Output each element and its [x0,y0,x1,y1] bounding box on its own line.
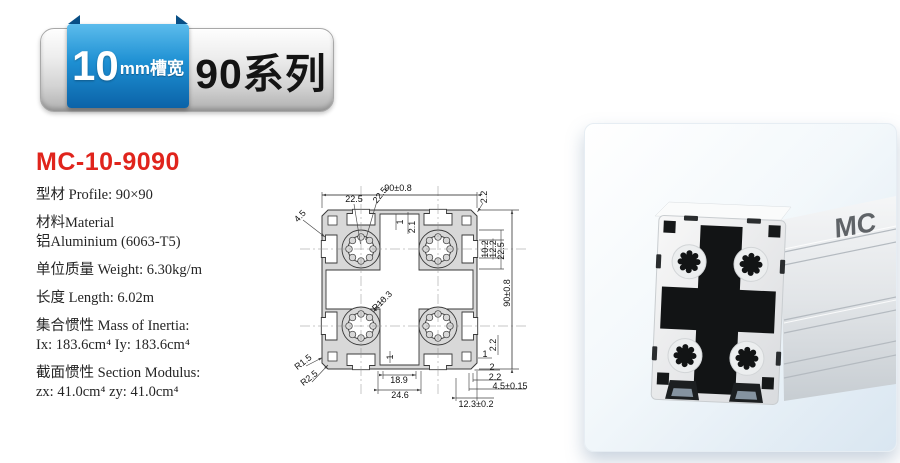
spec-group: 截面惯性 Section Modulus:zx: 41.0cm⁴ zy: 41.… [36,364,292,402]
dimension-label: R2.5 [298,368,319,388]
slot-width-number: 10 [72,24,119,108]
spec-line: 铝Aluminium (6063-T5) [36,233,292,252]
profile-3d-render: MC [585,124,896,451]
technical-drawing: 90±0.822.522.54.52.212.110.212.222.590±0… [288,168,608,420]
dimension-label: 1 [482,349,487,359]
dimension-label: 1 [395,219,405,224]
spec-line: 截面惯性 Section Modulus: [36,364,292,383]
dimension-label: R10.3 [370,289,394,313]
product-model: MC-10-9090 [36,148,180,177]
slot-width-label: 10mm槽宽 [72,24,184,108]
dimension-label: 22.5 [496,242,506,260]
spec-group: 单位质量 Weight: 6.30kg/m [36,261,292,280]
spec-line: 单位质量 Weight: 6.30kg/m [36,261,292,280]
dimension-label: 24.6 [391,390,409,400]
catalog-page: { "header": { "slot_badge": { "number": … [0,0,900,463]
spec-list: 型材 Profile: 90×90材料Material铝Aluminium (6… [36,186,292,411]
spec-line: 集合惯性 Mass of Inertia: [36,317,292,336]
dimension-label: 4.5±0.15 [493,381,528,391]
dimension-label: 18.9 [390,375,408,385]
spec-group: 型材 Profile: 90×90 [36,186,292,205]
dimension-label: 22.5 [345,194,363,204]
spec-group: 材料Material铝Aluminium (6063-T5) [36,214,292,252]
product-photo: MC [584,123,897,452]
spec-line: 长度 Length: 6.02m [36,289,292,308]
dimension-label: 2 [489,362,494,372]
slot-width-suffix: mm槽宽 [120,54,184,79]
spec-line: zx: 41.0cm⁴ zy: 41.0cm⁴ [36,383,292,402]
spec-group: 长度 Length: 6.02m [36,289,292,308]
dimension-label: 22.5 [371,185,390,205]
dimension-label: 12.3±0.2 [459,399,494,409]
dimension-label: 2.2 [488,339,498,352]
dimension-label: 2.2 [479,191,489,204]
dimension-label: 4.5 [292,208,308,224]
spec-group: 集合惯性 Mass of Inertia:Ix: 183.6cm⁴ Iy: 18… [36,317,292,355]
spec-line: 材料Material [36,214,292,233]
series-title: 90系列 [189,29,333,111]
dimension-label: 1 [385,354,395,359]
spec-line: 型材 Profile: 90×90 [36,186,292,205]
series-badge: 10mm槽宽 90系列 [40,28,334,112]
slot-width-ribbon: 10mm槽宽 [67,24,189,108]
dimension-label: 90±0.8 [502,279,512,306]
dimension-label: 2.1 [407,221,417,234]
profile-front-face [650,214,787,404]
spec-line: Ix: 183.6cm⁴ Iy: 183.6cm⁴ [36,336,292,355]
dimension-labels: 90±0.822.522.54.52.212.110.212.222.590±0… [288,168,608,420]
